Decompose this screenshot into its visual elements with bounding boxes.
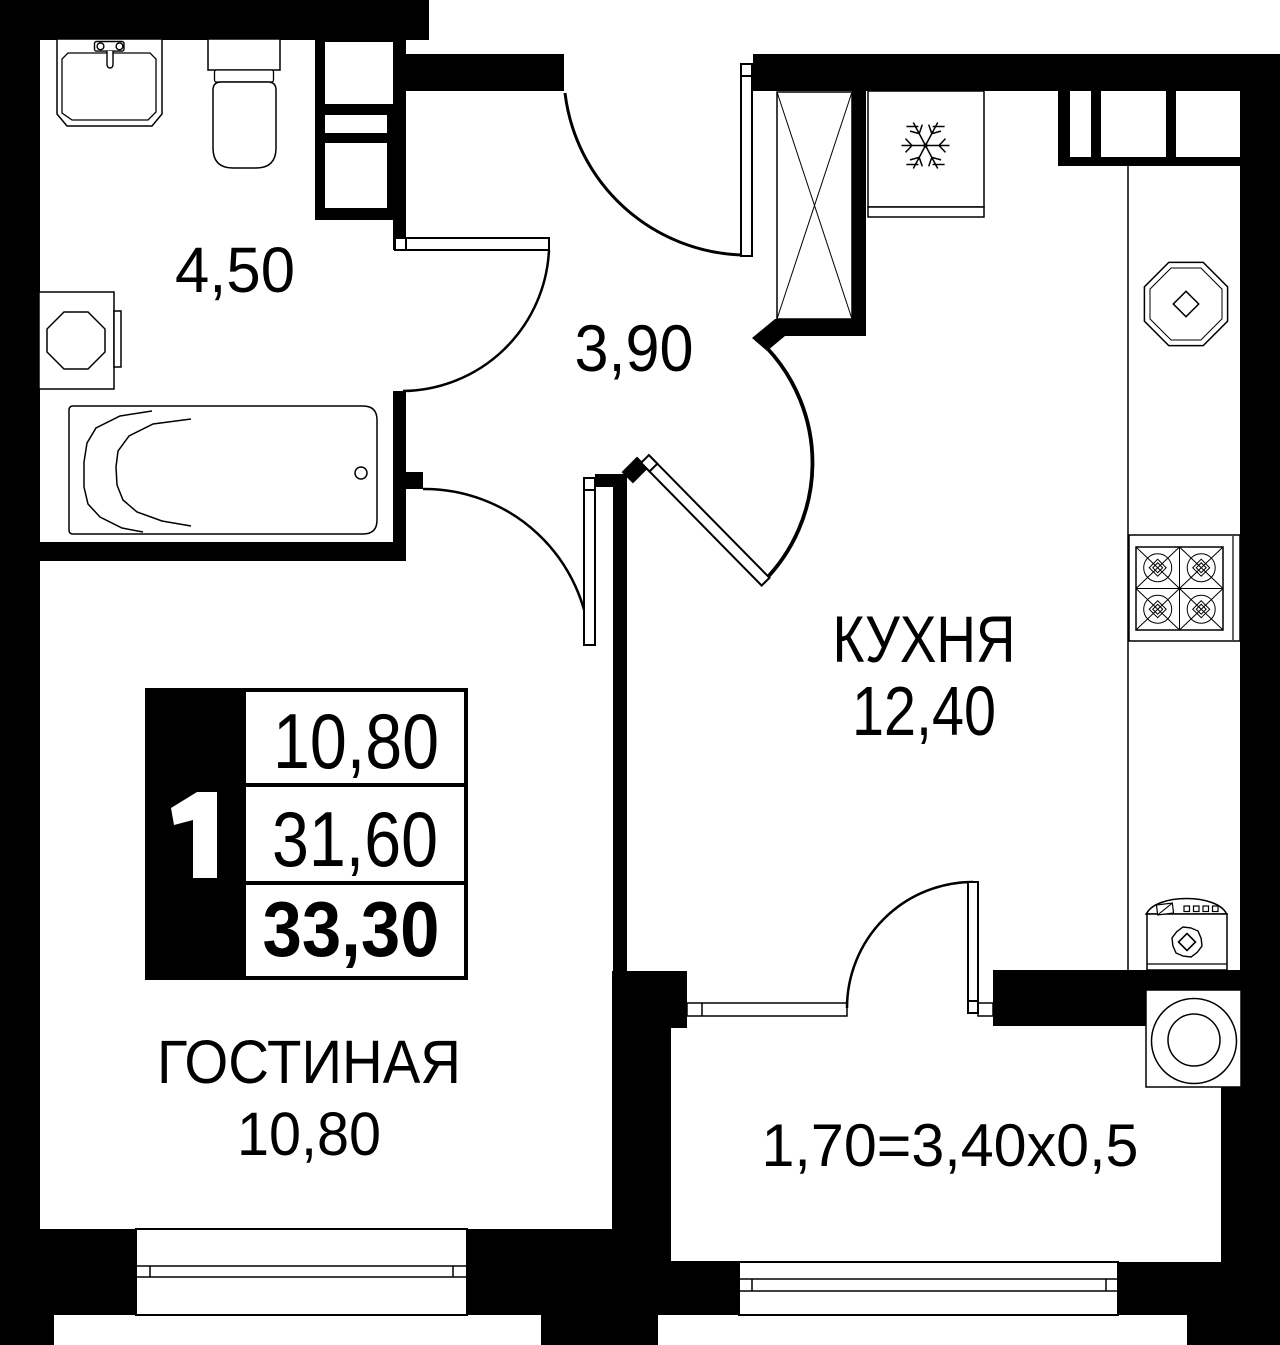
- svg-text:31,60: 31,60: [272, 795, 438, 883]
- svg-text:1,70=3,40x0,5: 1,70=3,40x0,5: [762, 1112, 1139, 1179]
- svg-text:10,80: 10,80: [237, 1100, 381, 1168]
- svg-text:КУХНЯ: КУХНЯ: [833, 602, 1016, 676]
- svg-text:12,40: 12,40: [852, 672, 996, 750]
- svg-text:10,80: 10,80: [273, 697, 439, 785]
- svg-text:3,90: 3,90: [575, 311, 694, 385]
- svg-text:4,50: 4,50: [175, 234, 295, 306]
- svg-text:ГОСТИНАЯ: ГОСТИНАЯ: [157, 1028, 461, 1096]
- svg-text:33,30: 33,30: [263, 885, 440, 973]
